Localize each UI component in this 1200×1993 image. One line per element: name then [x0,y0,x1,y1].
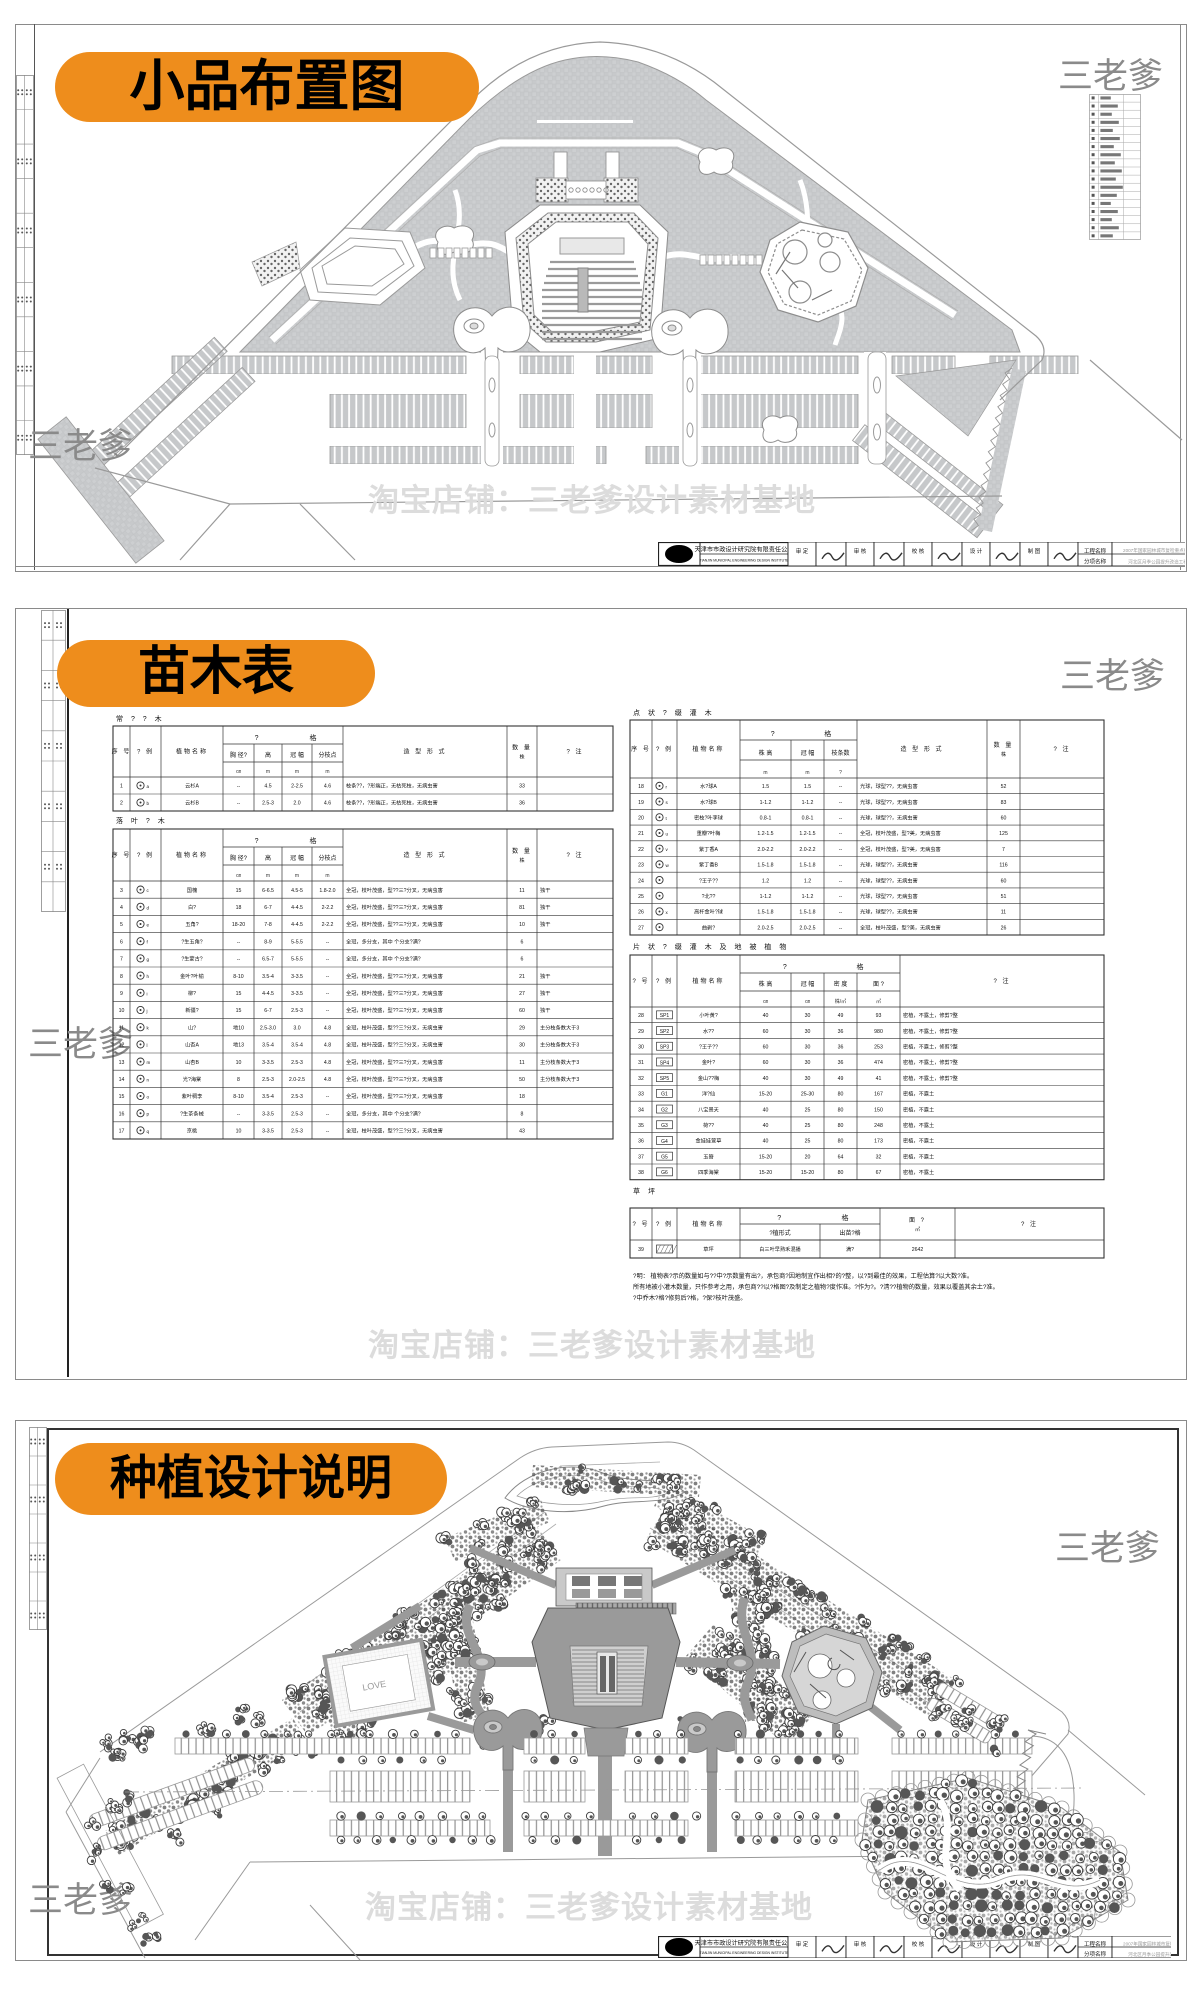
svg-text:116: 116 [999,863,1007,869]
svg-text:2.0-2.5: 2.0-2.5 [289,1077,305,1083]
svg-text:白?: 白? [188,903,196,911]
svg-text:金叶?叶榆: 金叶?叶榆 [180,972,204,980]
svg-text:光球，球型??，无病虫害: 光球，球型??，无病虫害 [860,892,918,900]
svg-text:主分枝条数大于3: 主分枝条数大于3 [540,1041,579,1049]
svg-text:--: -- [326,1008,330,1014]
svg-text:30: 30 [805,1013,811,1019]
svg-text:独干: 独干 [540,989,550,997]
svg-text:金山??梅: 金山??梅 [698,1074,719,1082]
svg-text:r: r [666,784,668,789]
svg-text:35: 35 [638,1123,644,1129]
svg-text:25: 25 [638,894,644,900]
svg-text:光?海棠: 光?海棠 [183,1075,201,1083]
svg-text:? 注: ? 注 [993,977,1010,985]
svg-text:60: 60 [1001,815,1007,821]
svg-text:2007年国家园林城市复检重点提升: 2007年国家园林城市复检重点提升 [1123,547,1185,554]
svg-text:7: 7 [120,957,123,963]
svg-text:密植，不露土，修剪?整: 密植，不露土，修剪?整 [903,1058,958,1066]
svg-text:主分枝条数大于3: 主分枝条数大于3 [540,1023,579,1031]
svg-text:30: 30 [805,1044,811,1050]
svg-text:5: 5 [120,922,123,928]
svg-text:植物名称: 植物名称 [692,977,724,985]
svg-text:40: 40 [763,1107,769,1113]
svg-text:全冠，枝叶茂盛，型??三?分叉，无病虫害: 全冠，枝叶茂盛，型??三?分叉，无病虫害 [346,886,443,894]
svg-text:150: 150 [874,1107,883,1113]
svg-text:全冠，枝叶茂盛，型??三?分叉，无病虫害: 全冠，枝叶茂盛，型??三?分叉，无病虫害 [346,1023,443,1031]
svg-text:分枝点: 分枝点 [318,751,336,759]
svg-text:造 型 形 式: 造 型 形 式 [403,851,446,859]
svg-text:全冠，多分支，其中 个分支?满?: 全冠，多分支，其中 个分支?满? [346,1109,421,1117]
svg-text:m: m [325,873,329,879]
svg-text:? 注: ? 注 [1021,1220,1038,1228]
svg-text:18: 18 [236,905,242,911]
svg-text:11: 11 [519,888,524,894]
svg-text:全冠，枝叶茂盛，型??三?分叉，无病虫害: 全冠，枝叶茂盛，型??三?分叉，无病虫害 [346,920,443,928]
svg-text:37: 37 [638,1154,644,1160]
svg-text:格: 格 [857,962,864,971]
svg-text:胸 径?: 胸 径? [230,751,248,759]
svg-text:全冠，枝叶茂盛，型??三?分叉，无病虫害: 全冠，枝叶茂盛，型??三?分叉，无病虫害 [346,903,443,911]
svg-text:格: 格 [824,729,831,738]
svg-text:38: 38 [638,1170,644,1176]
svg-text:主分枝条数大于3: 主分枝条数大于3 [540,1075,579,1083]
svg-text:株: 株 [519,754,524,761]
svg-text:1.5: 1.5 [762,784,769,790]
svg-text:h: h [147,974,150,979]
svg-text:83: 83 [1001,800,1007,806]
svg-text:4.8: 4.8 [324,1077,331,1083]
svg-text:u: u [666,831,669,836]
svg-text:1-1.2: 1-1.2 [760,894,772,900]
svg-text:植物名称: 植物名称 [176,851,208,859]
svg-text:3-3.5: 3-3.5 [262,1111,274,1117]
svg-text:?中乔木?格?修剪后?格，?保?枝叶茂盛。: ?中乔木?格?修剪后?格，?保?枝叶茂盛。 [633,1294,746,1302]
svg-text:3.5-4: 3.5-4 [262,1094,274,1100]
svg-text:白三叶早熟禾混播: 白三叶早熟禾混播 [759,1245,801,1253]
svg-text:密植，不露土: 密植，不露土 [903,1105,934,1113]
svg-text:云杉B: 云杉B [185,799,199,807]
svg-text:2.0: 2.0 [293,801,300,807]
svg-text:?: ? [783,964,787,971]
svg-text:㎝: ㎝ [236,769,241,775]
svg-text:41: 41 [876,1076,882,1082]
svg-text:独干: 独干 [540,920,550,928]
svg-text:常 ? ? 木: 常 ? ? 木 [116,714,165,723]
svg-text:52: 52 [1001,784,1007,790]
svg-text:格: 格 [310,836,317,845]
svg-text:密植，不露土，修剪?整: 密植，不露土，修剪?整 [903,1027,958,1035]
svg-text:5-5.5: 5-5.5 [291,939,303,945]
svg-text:1-1.2: 1-1.2 [802,894,814,900]
svg-text:0.8-1: 0.8-1 [802,815,814,821]
svg-text:SP4: SP4 [660,1060,670,1066]
svg-text:s: s [666,800,669,805]
svg-text:所有地被小灌木数量，只作参考之用，承包商??以?格图?及制定: 所有地被小灌木数量，只作参考之用，承包商??以?格图?及制定之植物?度作准。?作… [633,1283,999,1291]
svg-text:分枝点: 分枝点 [318,854,336,862]
svg-text:TIANJIN MUNICIPAL ENGINEERING: TIANJIN MUNICIPAL ENGINEERING DESIGN INS… [700,559,790,563]
svg-text:密植，不露土: 密植，不露土 [903,1090,934,1098]
svg-text:15-20: 15-20 [759,1170,772,1176]
svg-text:紫丁香A: 紫丁香A [699,845,719,853]
svg-text:全冠，枝叶茂盛，型?美，无病虫害: 全冠，枝叶茂盛，型?美，无病虫害 [860,845,941,853]
svg-text:冠 幅: 冠 幅 [290,751,304,759]
svg-text:全冠，枝叶茂盛，型??三?分叉，无病虫害: 全冠，枝叶茂盛，型??三?分叉，无病虫害 [346,1092,443,1100]
svg-text:m: m [266,873,270,879]
svg-text:序 号: 序 号 [112,748,132,756]
svg-text:60: 60 [1001,878,1007,884]
svg-text:o: o [147,1095,150,1100]
svg-text:33: 33 [638,1092,644,1098]
svg-text:株 高: 株 高 [759,980,773,988]
svg-text:山杏B: 山杏B [185,1058,199,1066]
svg-text:24: 24 [638,878,644,884]
svg-text:满?: 满? [846,1245,854,1253]
svg-text:?: ? [839,770,842,776]
svg-text:点 状 ? 缀 灌 木: 点 状 ? 缀 灌 木 [633,708,715,717]
svg-text:n: n [147,1077,150,1082]
svg-text:1.2-1.5: 1.2-1.5 [757,831,773,837]
svg-text:50: 50 [519,1077,525,1083]
svg-text:㎝: ㎝ [236,873,241,879]
svg-text:4.6: 4.6 [324,784,331,790]
svg-text:32: 32 [876,1154,882,1160]
svg-text:全冠，枝叶茂盛，型??三?分叉，无病虫害: 全冠，枝叶茂盛，型??三?分叉，无病虫害 [346,1006,443,1014]
svg-text:? 例: ? 例 [656,745,673,753]
svg-text:1.5-1.8: 1.5-1.8 [757,910,773,916]
svg-text:密植，不露土: 密植，不露土 [903,1152,934,1160]
svg-text:紫丁香B: 紫丁香B [699,861,719,869]
svg-text:植物名称: 植物名称 [692,1220,724,1228]
svg-text:8: 8 [521,1111,524,1117]
svg-text:1.8-2.0: 1.8-2.0 [319,888,335,894]
svg-text:1-1.2: 1-1.2 [802,800,814,806]
svg-text:36: 36 [838,1029,844,1035]
svg-text:柳?: 柳? [188,989,196,997]
svg-text:株: 株 [519,857,524,864]
svg-text:全冠，枝叶茂盛，型?美，无病虫害: 全冠，枝叶茂盛，型?美，无病虫害 [860,923,941,931]
svg-text:2.5-3.0: 2.5-3.0 [260,1025,276,1031]
svg-text:山杏A: 山杏A [185,1041,199,1049]
svg-text:7-8: 7-8 [264,922,272,928]
svg-text:密植，不露土: 密植，不露土 [903,1168,934,1176]
svg-text:枝条数: 枝条数 [831,749,849,757]
svg-text:30: 30 [519,1043,525,1049]
svg-text:f: f [147,940,149,945]
svg-text:?北??: ?北?? [702,892,716,900]
svg-text:地10: 地10 [233,1023,244,1031]
svg-text:c: c [147,888,150,893]
svg-text:草坪: 草坪 [703,1245,713,1253]
svg-text:2.5-3: 2.5-3 [291,1111,303,1117]
svg-text:8-9: 8-9 [264,939,272,945]
svg-text:2-2.5: 2-2.5 [291,784,303,790]
svg-text:4.8: 4.8 [324,1025,331,1031]
svg-text:全冠，枝叶茂盛，型?美，无病虫害: 全冠，枝叶茂盛，型?美，无病虫害 [860,829,941,837]
svg-text:数 量: 数 量 [994,741,1014,749]
svg-text:植物名称: 植物名称 [176,748,208,756]
svg-text:2.5-3: 2.5-3 [291,1008,303,1014]
svg-text:e: e [147,923,150,928]
svg-text:18-20: 18-20 [232,922,245,928]
svg-text:2-2.2: 2-2.2 [322,922,334,928]
svg-text:河北区月季公园提升改造工程: 河北区月季公园提升改造工程 [1128,559,1185,566]
svg-text:6: 6 [521,939,524,945]
svg-text:水?球B: 水?球B [700,798,717,806]
svg-text:G4: G4 [661,1139,668,1145]
svg-text:q: q [147,1129,150,1134]
svg-text:? 号: ? 号 [632,1221,649,1228]
svg-text:--: -- [839,863,843,869]
svg-text:167: 167 [874,1092,883,1098]
svg-text:?生蒙古?: ?生蒙古? [181,955,202,963]
svg-text:荷??: 荷?? [703,1121,714,1129]
svg-text:43: 43 [519,1129,525,1135]
svg-text:248: 248 [874,1123,883,1129]
svg-text:密枝?叶李球: 密枝?叶李球 [694,813,724,821]
svg-text:--: -- [839,925,843,931]
svg-text:26: 26 [638,910,644,916]
svg-text:i: i [147,991,148,996]
svg-text:? 注: ? 注 [566,851,583,859]
svg-text:--: -- [237,1111,241,1117]
svg-text:39: 39 [638,1247,644,1253]
svg-text:独干: 独干 [540,886,550,894]
svg-text:主分枝条数大于3: 主分枝条数大于3 [540,1058,579,1066]
svg-text:10: 10 [236,1129,242,1135]
svg-text:81: 81 [519,905,525,911]
svg-text:474: 474 [874,1060,883,1066]
svg-text:10: 10 [236,1060,242,1066]
svg-text:片 状 ? 缀 灌 木 及 地 被 植 物: 片 状 ? 缀 灌 木 及 地 被 植 物 [633,942,789,951]
svg-text:高杆金叶?球: 高杆金叶?球 [694,908,724,916]
svg-text:1.5-1.8: 1.5-1.8 [799,910,815,916]
svg-text:23: 23 [638,863,644,869]
svg-text:15: 15 [236,991,242,997]
svg-text:m: m [325,769,329,775]
svg-text:173: 173 [874,1139,883,1145]
svg-text:高: 高 [265,751,271,759]
svg-text:--: -- [839,847,843,853]
svg-text:3-3.5: 3-3.5 [291,991,303,997]
svg-text:17: 17 [119,1129,125,1135]
svg-text:枝条??，?形端正，无枯死枝，无病虫害: 枝条??，?形端正，无枯死枝，无病虫害 [346,799,438,807]
svg-text:33: 33 [519,784,525,790]
svg-text:全冠，枝叶茂盛，型??三?分叉，无病虫害: 全冠，枝叶茂盛，型??三?分叉，无病虫害 [346,989,443,997]
svg-text:密植，不露土: 密植，不露土 [903,1121,934,1129]
svg-text:全冠，枝叶茂盛，型??三?分叉，无病虫害: 全冠，枝叶茂盛，型??三?分叉，无病虫害 [346,1127,443,1135]
svg-text:高: 高 [265,854,271,862]
svg-text:15-20: 15-20 [801,1170,814,1176]
svg-text:30: 30 [805,1029,811,1035]
svg-text:w: w [666,863,670,868]
svg-text:31: 31 [638,1060,644,1066]
svg-text:3.5-4: 3.5-4 [291,1043,303,1049]
svg-text:3-3.5: 3-3.5 [262,1129,274,1135]
svg-text:6.5-7: 6.5-7 [262,957,274,963]
svg-text:8: 8 [120,974,123,980]
svg-text:3: 3 [120,888,123,894]
svg-text:--: -- [839,878,843,884]
svg-text:光球，球型??，无病虫害: 光球，球型??，无病虫害 [860,908,918,916]
svg-text:j: j [146,1009,148,1014]
svg-text:四季海棠: 四季海棠 [698,1168,719,1176]
svg-text:4.5: 4.5 [264,784,271,790]
svg-text:3.0: 3.0 [293,1025,300,1031]
svg-text:2.5-3: 2.5-3 [291,1129,303,1135]
svg-text:?: ? [255,838,259,845]
svg-text:40: 40 [763,1123,769,1129]
svg-text:2642: 2642 [912,1247,924,1253]
svg-text:15-20: 15-20 [759,1092,772,1098]
svg-text:1.5-1.8: 1.5-1.8 [799,863,815,869]
svg-text:造 型 形 式: 造 型 形 式 [403,748,446,756]
svg-text:京桃: 京桃 [187,1127,198,1135]
svg-text:全冠，多分支，其中 个分支?满?: 全冠，多分支，其中 个分支?满? [346,937,421,945]
svg-text:密 度: 密 度 [834,980,848,988]
svg-text:出苗?格: 出苗?格 [839,1229,860,1237]
svg-text:全冠，枝叶茂盛，型??三?分叉，无病虫害: 全冠，枝叶茂盛，型??三?分叉，无病虫害 [346,1075,443,1083]
svg-text:洋?仙: 洋?仙 [702,1090,715,1098]
svg-text:全冠，枝叶茂盛，型??三?分叉，无病虫害: 全冠，枝叶茂盛，型??三?分叉，无病虫害 [346,1041,443,1049]
svg-text:小叶黄?: 小叶黄? [699,1011,718,1019]
svg-text:--: -- [839,894,843,900]
svg-text:15: 15 [236,1008,242,1014]
svg-text:2.5-3: 2.5-3 [262,801,274,807]
svg-text:67: 67 [876,1170,882,1176]
svg-text:49: 49 [838,1013,844,1019]
svg-text:G2: G2 [661,1107,668,1113]
svg-text:? 例: ? 例 [656,1220,673,1228]
svg-text:? 例: ? 例 [656,977,673,985]
svg-text:序 号: 序 号 [112,851,132,859]
svg-text:2: 2 [120,801,123,807]
svg-text:--: -- [326,957,330,963]
svg-text:30: 30 [638,1044,644,1050]
svg-text:?生茶条械: ?生茶条械 [180,1109,204,1117]
svg-text:㎡: ㎡ [876,998,881,1005]
svg-text:2.0-2.2: 2.0-2.2 [757,847,773,853]
svg-text:l: l [147,1043,148,1048]
svg-text:造 型 形 式: 造 型 形 式 [900,745,943,753]
svg-text:1.2: 1.2 [804,878,811,884]
svg-text:1.2-1.5: 1.2-1.5 [799,831,815,837]
svg-text:36: 36 [519,801,525,807]
svg-text:水?球A: 水?球A [700,782,717,790]
svg-text:12: 12 [119,1043,125,1049]
svg-text:27: 27 [519,991,525,997]
svg-text:3.5-4: 3.5-4 [262,974,274,980]
svg-text:SP1: SP1 [660,1013,670,1019]
svg-text:80: 80 [838,1170,844,1176]
svg-text:49: 49 [838,1076,844,1082]
svg-text:30: 30 [805,1060,811,1066]
svg-text:?: ? [777,1215,781,1222]
svg-text:--: -- [326,974,330,980]
svg-text:重瓣?叶梅: 重瓣?叶梅 [697,829,721,837]
svg-text:全冠，枝叶茂盛，型??三?分叉，无病虫害: 全冠，枝叶茂盛，型??三?分叉，无病虫害 [346,1058,443,1066]
svg-text:980: 980 [874,1029,883,1035]
svg-text:80: 80 [838,1139,844,1145]
svg-text:--: -- [839,831,843,837]
svg-text:g: g [147,957,150,962]
svg-text:m: m [805,770,809,776]
svg-text:21: 21 [638,831,644,837]
svg-text:27: 27 [638,925,644,931]
svg-text:80: 80 [838,1107,844,1113]
svg-text:株: 株 [1001,751,1006,758]
svg-text:? 例: ? 例 [137,748,154,756]
svg-text:冠 幅: 冠 幅 [801,980,815,988]
svg-text:面 ?: 面 ? [909,1217,926,1224]
svg-text:b: b [147,801,150,806]
svg-text:光球，球型??，无病虫害: 光球，球型??，无病虫害 [860,813,918,821]
svg-text:18: 18 [519,1094,525,1100]
svg-text:天津市市政设计研究院有限责任公司: 天津市市政设计研究院有限责任公司 [695,546,794,554]
svg-text:G3: G3 [661,1123,668,1129]
svg-text:全冠，多分支，其中 个分支?满?: 全冠，多分支，其中 个分支?满? [346,955,421,963]
svg-text:2-2.2: 2-2.2 [322,905,334,911]
svg-text:SP3: SP3 [660,1045,670,1051]
svg-text:玉簪: 玉簪 [703,1152,713,1160]
svg-text:25: 25 [805,1107,811,1113]
svg-text:14: 14 [119,1077,125,1083]
svg-text:SP5: SP5 [660,1076,670,1082]
svg-text:m: m [763,770,767,776]
svg-text:8: 8 [237,1077,240,1083]
svg-text:3-3.5: 3-3.5 [262,1060,274,1066]
svg-text:2.5-3: 2.5-3 [291,1060,303,1066]
svg-text:25: 25 [805,1139,811,1145]
svg-text:㎝: ㎝ [805,999,810,1005]
svg-text:29: 29 [638,1029,644,1035]
svg-text:10: 10 [119,1008,125,1014]
svg-text:30: 30 [805,1076,811,1082]
svg-text:t: t [666,816,668,821]
svg-text:光球，球型??，无病虫害: 光球，球型??，无病虫害 [860,798,918,806]
svg-text:11: 11 [1001,910,1006,916]
svg-text:冠 幅: 冠 幅 [801,749,815,757]
svg-text:2.0-2.5: 2.0-2.5 [799,925,815,931]
svg-text:64: 64 [838,1154,844,1160]
svg-text:密植，不露土，修剪?整: 密植，不露土，修剪?整 [903,1074,958,1082]
svg-text:光球，球型??，无病虫害: 光球，球型??，无病虫害 [860,861,918,869]
svg-text:? 注: ? 注 [566,748,583,756]
svg-text:地13: 地13 [233,1041,244,1049]
svg-text:独干: 独干 [540,972,550,980]
svg-text:数 量: 数 量 [512,847,532,855]
svg-text:36: 36 [838,1060,844,1066]
svg-text:4-4.5: 4-4.5 [291,922,303,928]
svg-text:6-7: 6-7 [264,1008,272,1014]
svg-text:4.8: 4.8 [324,1060,331,1066]
svg-text:34: 34 [638,1107,644,1113]
svg-text:? 例: ? 例 [137,851,154,859]
svg-text:格: 格 [842,1213,849,1222]
svg-text:6: 6 [120,939,123,945]
svg-text:水??: 水?? [703,1027,714,1035]
svg-text:13: 13 [119,1060,125,1066]
svg-text:25-30: 25-30 [801,1092,814,1098]
svg-text:10: 10 [519,922,525,928]
svg-text:16: 16 [119,1111,125,1117]
svg-text:--: -- [839,800,843,806]
svg-text:4.8: 4.8 [324,1043,331,1049]
svg-text:28: 28 [638,1013,644,1019]
svg-text:1-1.2: 1-1.2 [760,800,772,806]
svg-text:m: m [295,769,299,775]
svg-text:51: 51 [1001,894,1007,900]
svg-text:云杉A: 云杉A [185,782,199,790]
